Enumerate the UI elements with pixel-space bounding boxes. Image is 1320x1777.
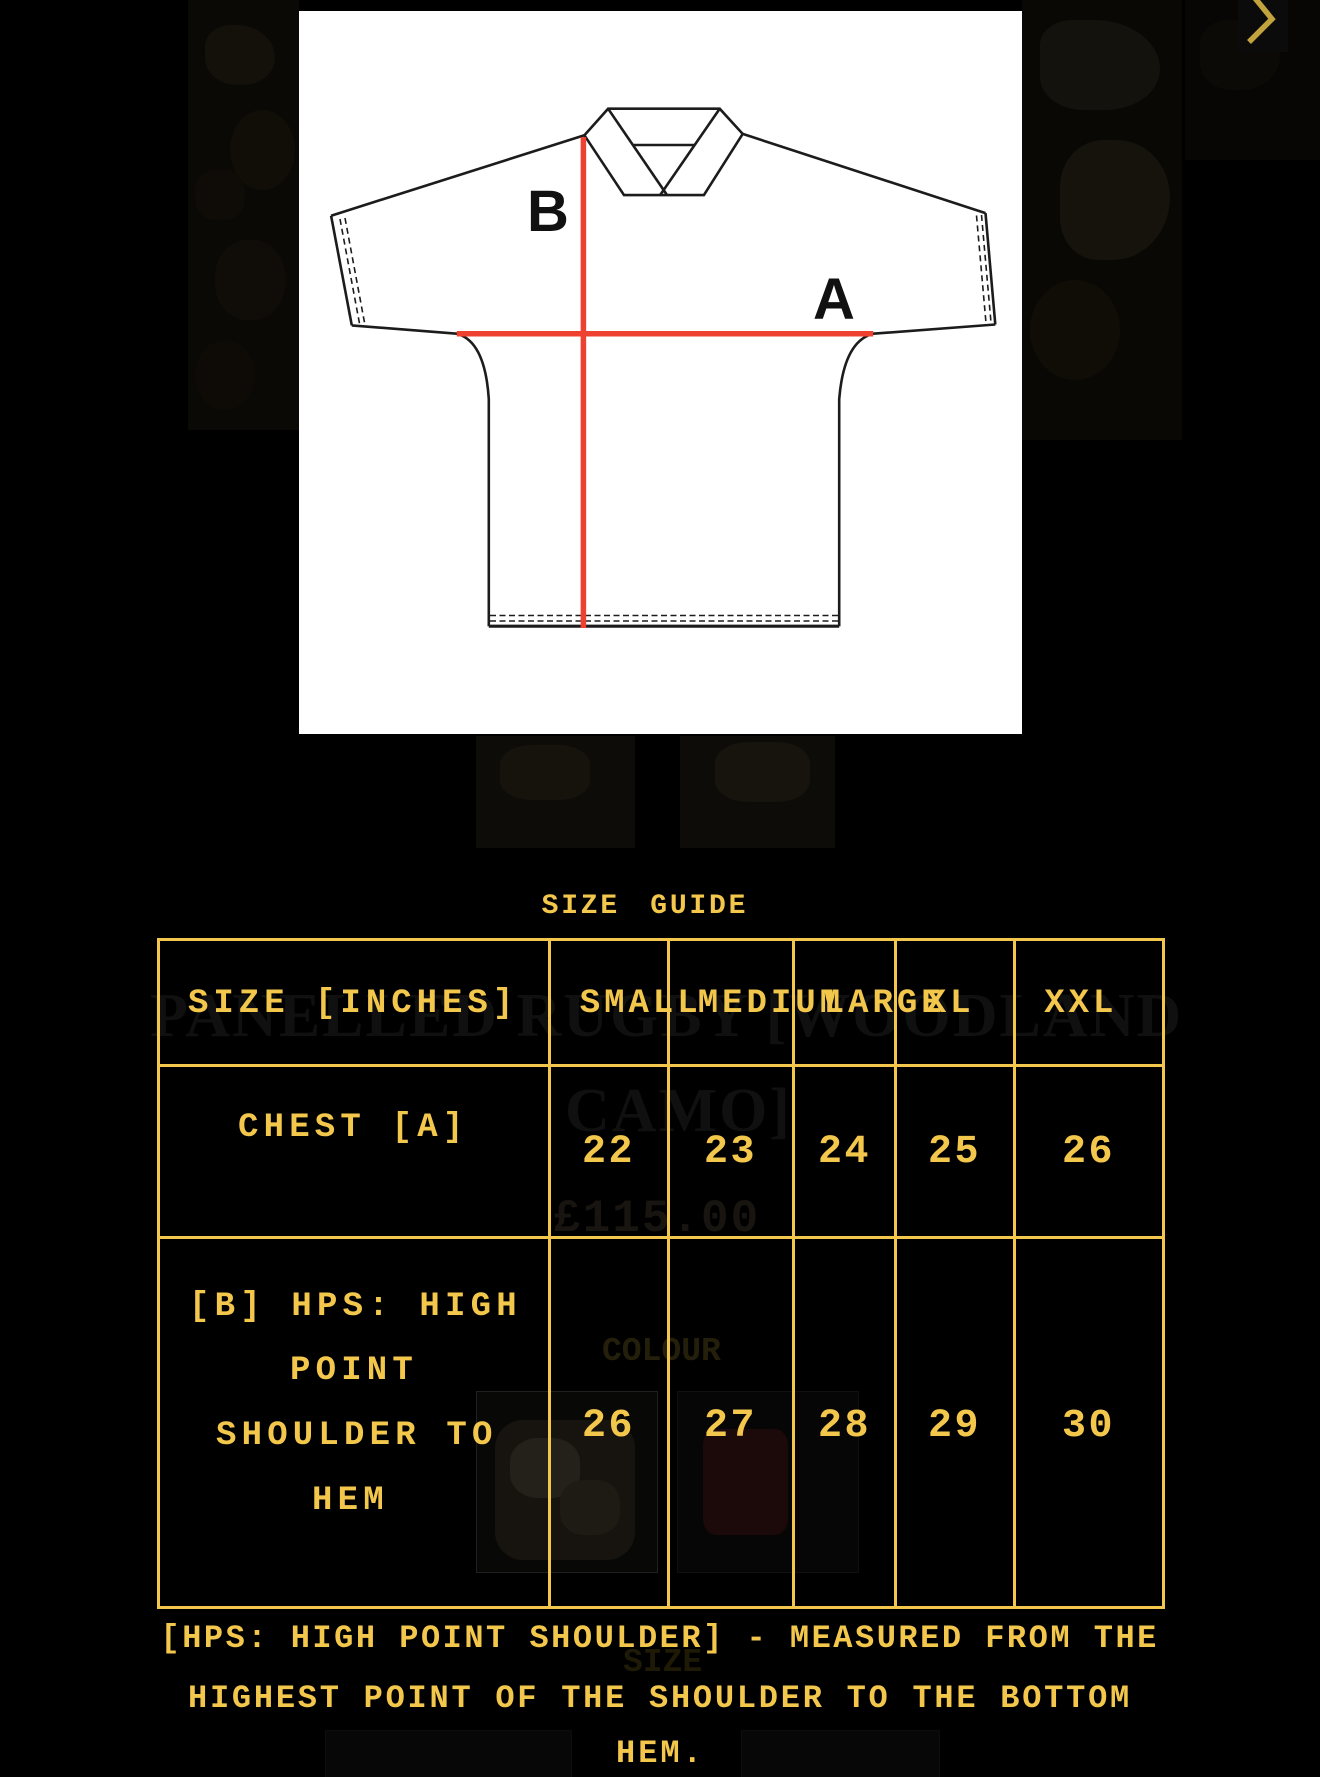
svg-text:B: B	[527, 179, 569, 244]
svg-text:A: A	[813, 267, 855, 332]
